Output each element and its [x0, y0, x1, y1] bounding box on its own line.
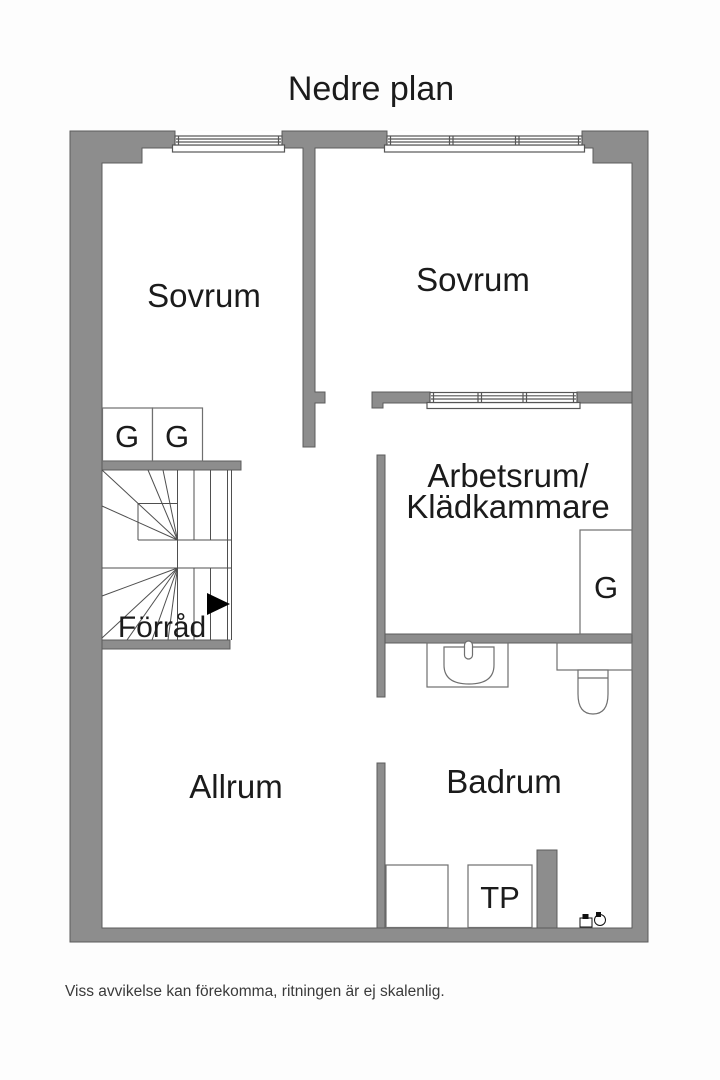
floorplan-svg: Nedre plan — [0, 0, 720, 1080]
label-sovrum-right: Sovrum — [416, 261, 530, 298]
label-wardrobe-3: G — [594, 570, 618, 605]
washer-box — [386, 865, 448, 928]
page-title: Nedre plan — [288, 70, 454, 108]
label-arbetsrum-line2: Klädkammare — [406, 488, 610, 525]
label-dryer-tower: TP — [480, 880, 520, 915]
window-sovrum-right — [385, 136, 585, 152]
floorplan-page: Nedre plan — [0, 0, 720, 1080]
floor-area — [70, 131, 648, 942]
wall-hall-badrum-lower — [377, 763, 385, 928]
sink-icon — [427, 641, 508, 687]
wall-sovrum-left-bottom — [102, 461, 241, 470]
wall-sovrum-right-bottom-right-segment — [577, 392, 632, 403]
wall-badrum-stub — [537, 850, 557, 928]
label-wardrobe-2: G — [165, 419, 189, 454]
wall-hall-arbetsrum-upper — [377, 455, 385, 697]
label-wardrobe-1: G — [115, 419, 139, 454]
wall-arbetsrum-badrum — [385, 634, 632, 643]
window-arbetsrum — [427, 393, 580, 409]
window-sovrum-left — [173, 136, 285, 152]
label-forrad: Förråd — [118, 611, 206, 644]
disclaimer-text: Viss avvikelse kan förekomma, ritningen … — [65, 983, 445, 1000]
label-badrum: Badrum — [446, 763, 562, 800]
label-sovrum-left: Sovrum — [147, 277, 261, 314]
label-allrum: Allrum — [189, 768, 283, 805]
